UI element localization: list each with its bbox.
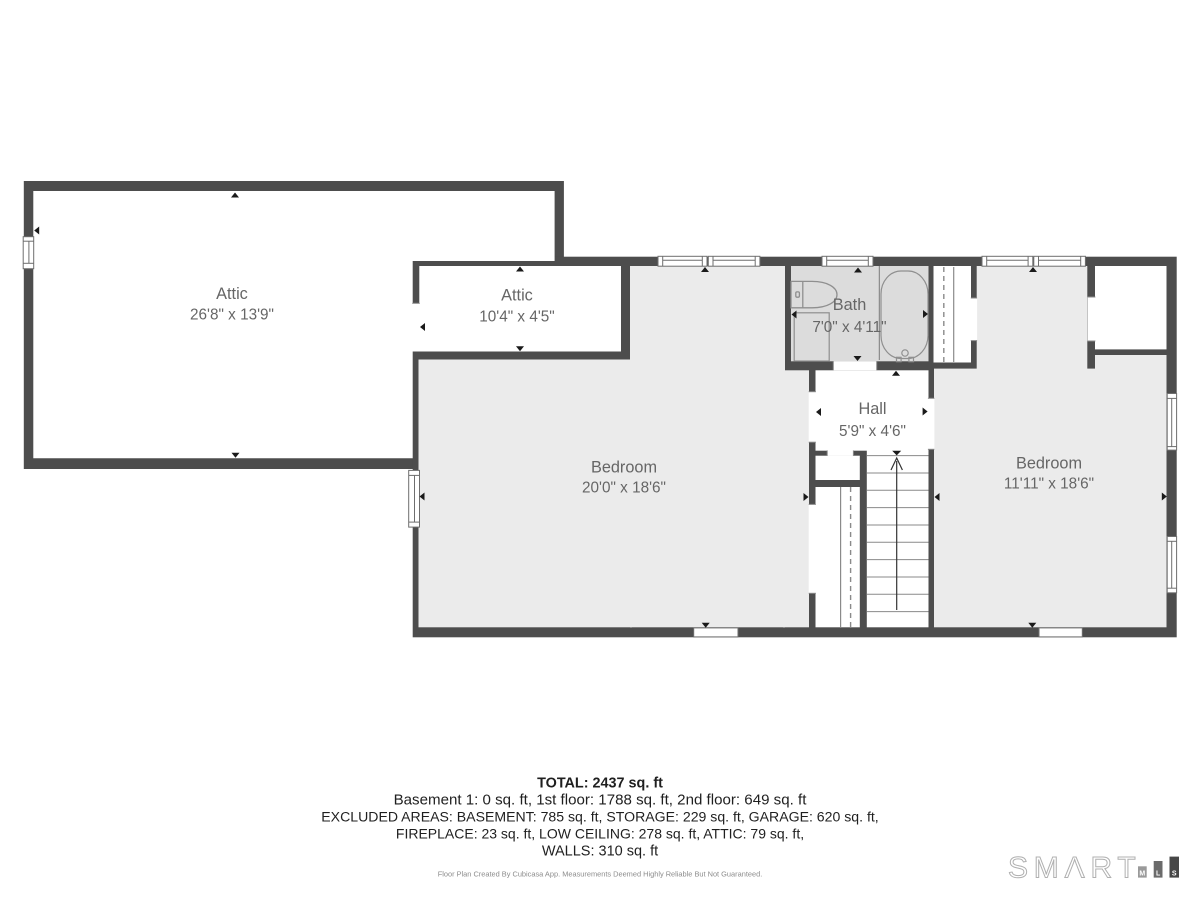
svg-text:Bath: Bath — [833, 296, 867, 314]
svg-text:SMΛRT: SMΛRT — [1008, 852, 1142, 885]
svg-text:L: L — [1156, 871, 1161, 878]
svg-text:11'11" x 18'6": 11'11" x 18'6" — [1004, 476, 1094, 493]
svg-text:Bedroom: Bedroom — [591, 459, 657, 477]
svg-text:Floor Plan Created By Cubicasa: Floor Plan Created By Cubicasa App. Meas… — [438, 870, 763, 879]
svg-text:20'0" x 18'6": 20'0" x 18'6" — [582, 480, 666, 497]
svg-text:TOTAL: 2437 sq. ft: TOTAL: 2437 sq. ft — [537, 776, 663, 792]
svg-text:Attic: Attic — [501, 287, 533, 305]
svg-text:S: S — [1172, 871, 1177, 878]
svg-text:Attic: Attic — [216, 285, 248, 303]
svg-text:WALLS: 310 sq. ft: WALLS: 310 sq. ft — [542, 844, 658, 860]
svg-text:FIREPLACE: 23 sq. ft, LOW CEIL: FIREPLACE: 23 sq. ft, LOW CEILING: 278 s… — [396, 826, 804, 842]
svg-text:Bedroom: Bedroom — [1016, 455, 1082, 473]
svg-text:7'0" x 4'11": 7'0" x 4'11" — [812, 319, 886, 336]
svg-text:EXCLUDED AREAS: BASEMENT: 785: EXCLUDED AREAS: BASEMENT: 785 sq. ft, ST… — [321, 809, 878, 825]
svg-text:Basement 1: 0 sq. ft, 1st floo: Basement 1: 0 sq. ft, 1st floor: 1788 sq… — [394, 792, 808, 809]
svg-text:26'8" x 13'9": 26'8" x 13'9" — [190, 306, 274, 323]
svg-text:M: M — [1139, 871, 1145, 878]
svg-text:Hall: Hall — [858, 400, 886, 418]
svg-text:5'9" x 4'6": 5'9" x 4'6" — [839, 423, 906, 440]
svg-text:10'4" x 4'5": 10'4" x 4'5" — [479, 309, 554, 326]
